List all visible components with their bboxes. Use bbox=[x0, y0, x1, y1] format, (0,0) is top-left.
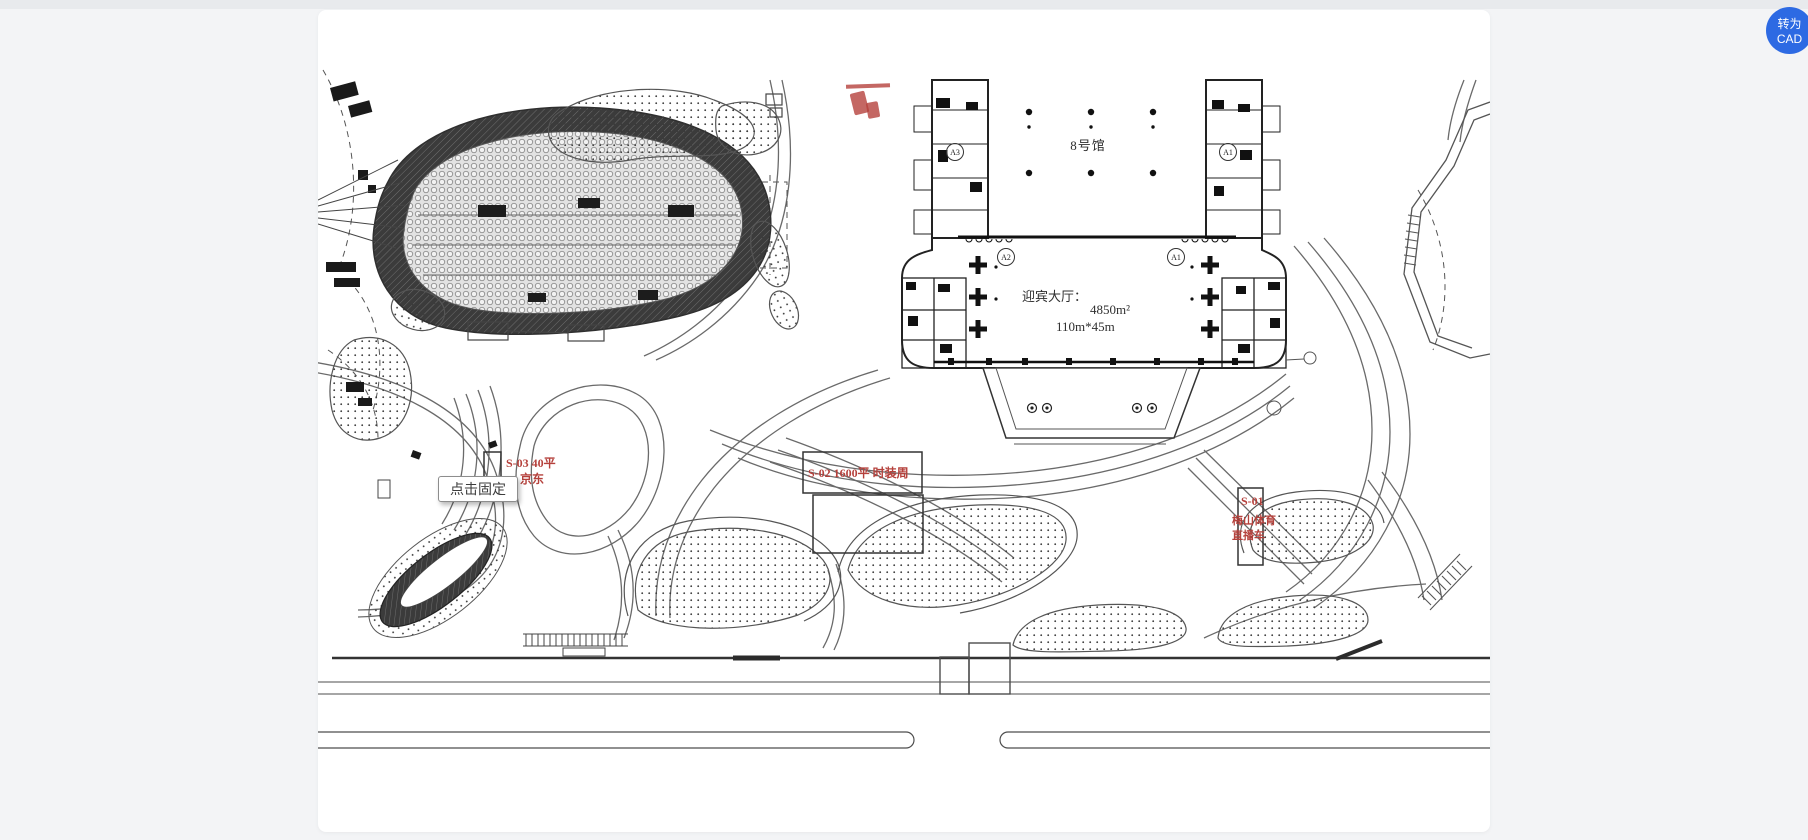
lobby-title: 迎宾大厅： bbox=[1022, 286, 1087, 305]
booth-s01-line1[interactable]: 梅山体育 bbox=[1232, 512, 1276, 528]
booth-s01-line2[interactable]: 直播车 bbox=[1232, 527, 1265, 543]
booth-s01-id[interactable]: S-01 bbox=[1241, 494, 1264, 509]
app-page: 8号馆 迎宾大厅： 4850m² 110m*45m A3 A1 A2 A1 S-… bbox=[0, 0, 1808, 840]
lobby-dimensions: 110m*45m bbox=[1056, 319, 1115, 335]
crosswalk-bottom bbox=[523, 634, 628, 656]
pin-tooltip[interactable]: 点击固定 bbox=[438, 476, 518, 502]
bottom-roads bbox=[318, 641, 1490, 748]
amphitheater-bowl bbox=[403, 132, 742, 314]
site-plan-drawing bbox=[318, 10, 1490, 832]
entrance-stair bbox=[983, 368, 1200, 444]
neighbor-structure bbox=[1404, 102, 1490, 358]
grid-bubble-a1: A1 bbox=[1167, 248, 1185, 266]
convert-to-cad-button[interactable]: 转为CAD bbox=[1766, 7, 1808, 54]
top-band bbox=[0, 0, 1808, 9]
booth-s03-label[interactable]: S-03 40平 bbox=[506, 454, 556, 471]
grid-bubble-a2: A2 bbox=[997, 248, 1015, 266]
dark-crescent-bed bbox=[349, 496, 527, 660]
lobby-area: 4850m² bbox=[1090, 302, 1130, 318]
plan-canvas[interactable]: 8号馆 迎宾大厅： 4850m² 110m*45m A3 A1 A2 A1 S-… bbox=[318, 10, 1490, 832]
crosswalk-right bbox=[1418, 554, 1472, 610]
booth-s03-tenant[interactable]: 京东 bbox=[520, 470, 544, 487]
grid-bubble-a3: A3 bbox=[946, 143, 964, 161]
grid-bubble-a1-top: A1 bbox=[1219, 143, 1237, 161]
hall-8-label: 8号馆 bbox=[1060, 135, 1116, 154]
booth-s02-label[interactable]: S-02 1600平 时装周 bbox=[808, 464, 909, 481]
